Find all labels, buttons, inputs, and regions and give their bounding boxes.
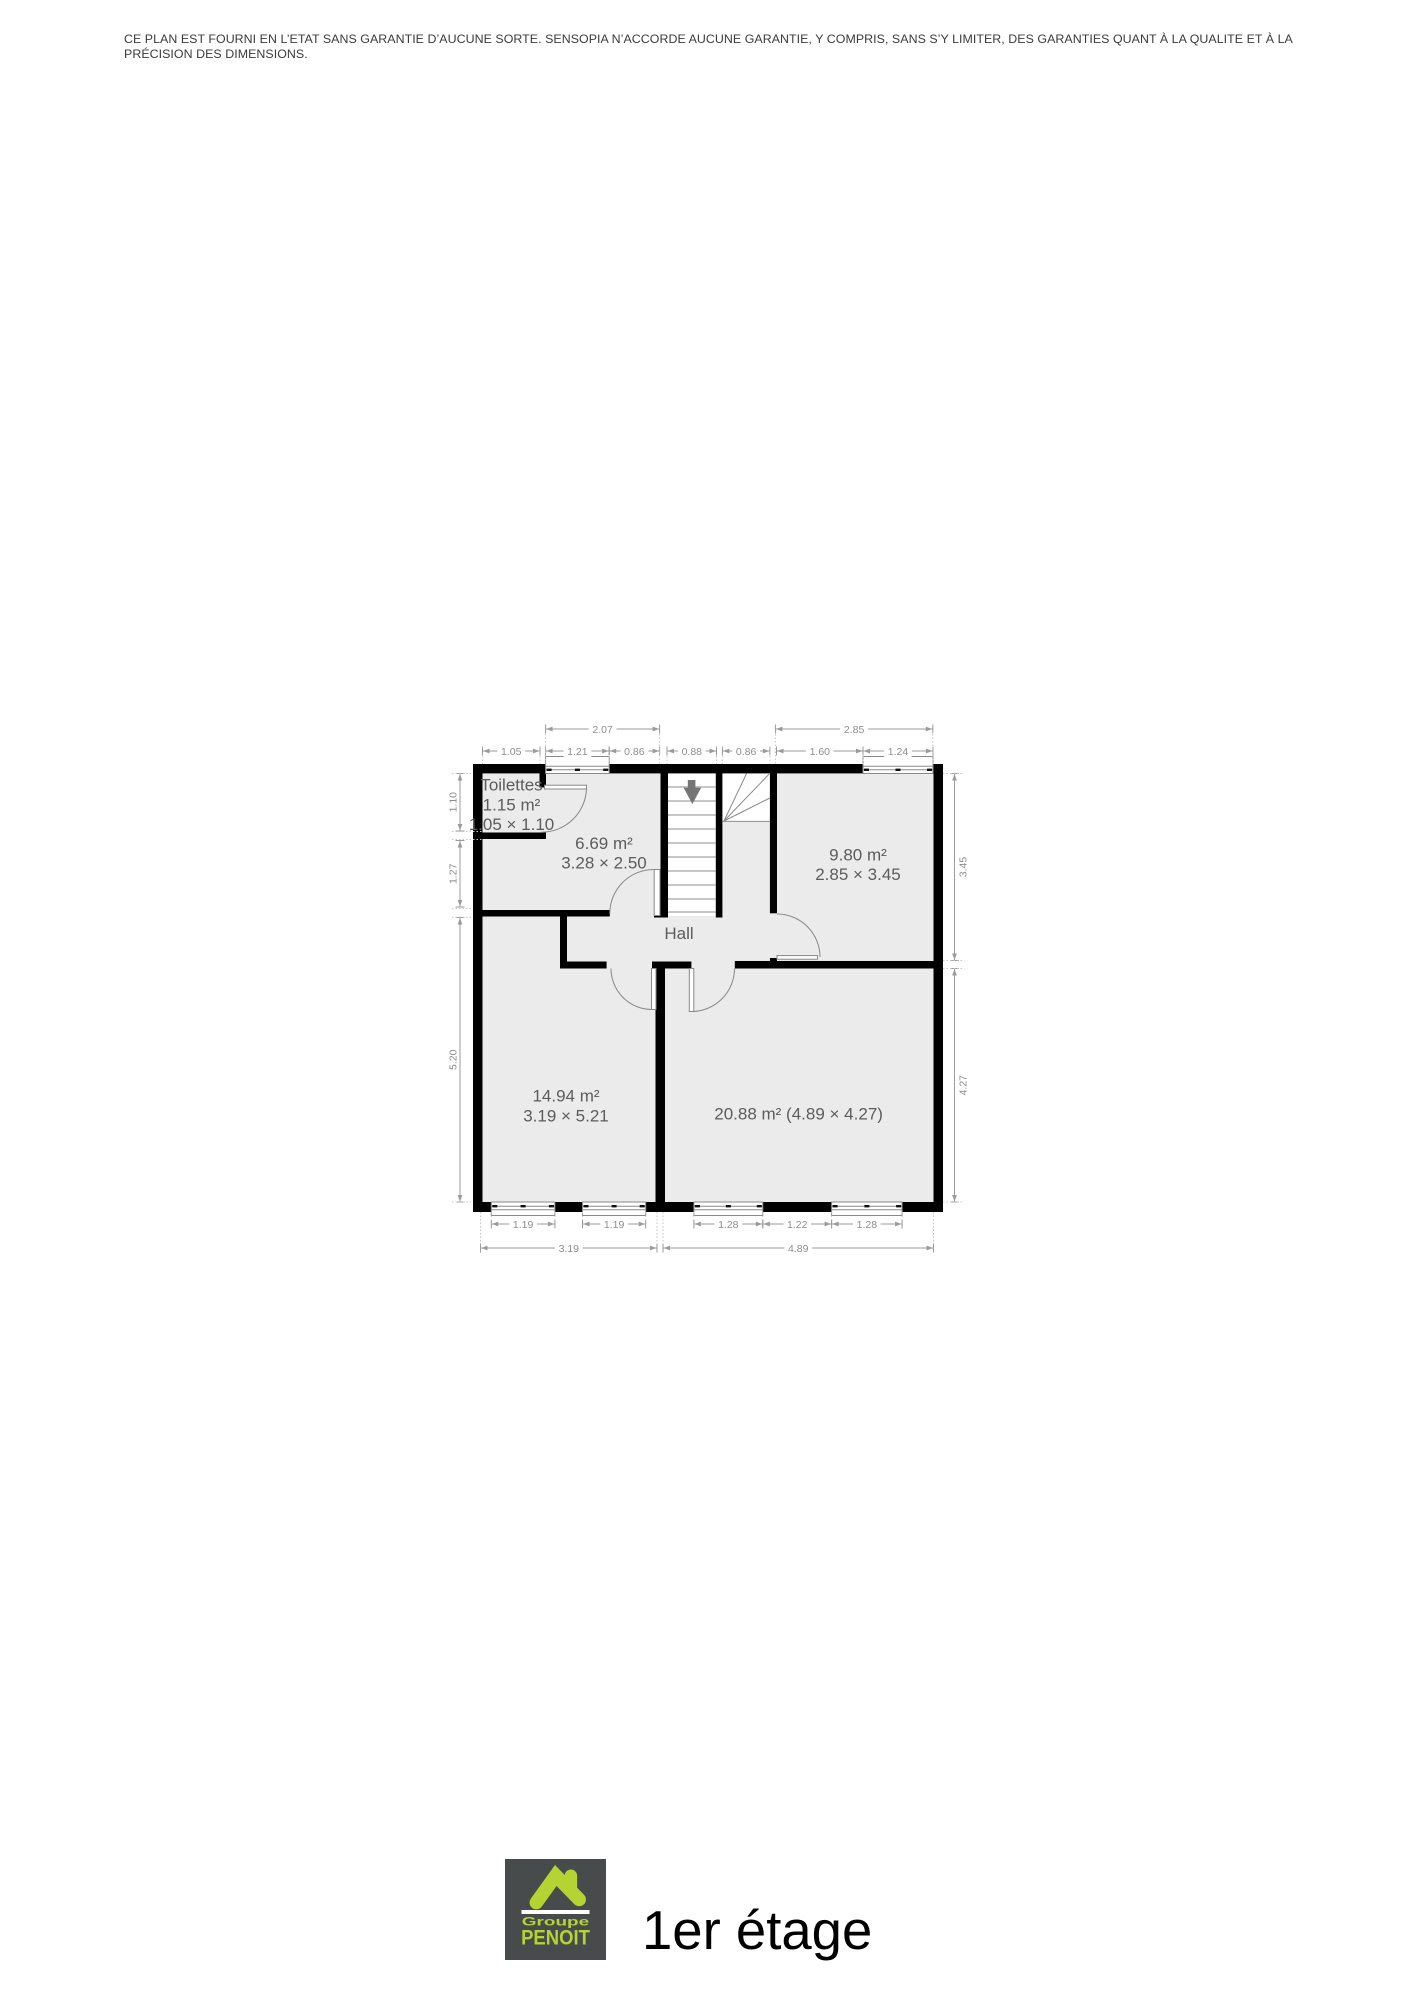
svg-text:3.19: 3.19 [559,1243,580,1255]
svg-text:5.20: 5.20 [447,1049,459,1070]
svg-text:0.86: 0.86 [736,746,757,758]
svg-text:Toilettes: Toilettes [480,776,542,795]
svg-text:14.94 m²: 14.94 m² [532,1087,599,1106]
svg-text:3.19 × 5.21: 3.19 × 5.21 [523,1106,609,1125]
svg-text:1.05 × 1.10: 1.05 × 1.10 [469,815,555,834]
svg-text:2.85: 2.85 [844,724,865,736]
svg-text:PENOIT: PENOIT [521,1926,590,1949]
svg-text:4.89: 4.89 [788,1243,809,1255]
svg-text:1.10: 1.10 [447,792,459,813]
svg-text:Hall: Hall [664,924,693,943]
svg-text:2.85 × 3.45: 2.85 × 3.45 [815,865,901,884]
svg-text:0.88: 0.88 [682,746,703,758]
svg-text:6.69 m²: 6.69 m² [575,834,633,853]
svg-text:9.80 m²: 9.80 m² [829,845,887,864]
svg-text:1.28: 1.28 [857,1219,878,1231]
svg-text:1.19: 1.19 [513,1219,534,1231]
svg-text:1.22: 1.22 [787,1219,808,1231]
svg-text:20.88 m² (4.89 × 4.27): 20.88 m² (4.89 × 4.27) [714,1104,883,1123]
svg-text:1.05: 1.05 [501,746,522,758]
svg-text:1.28: 1.28 [718,1219,739,1231]
svg-text:1.27: 1.27 [447,863,459,884]
svg-text:3.45: 3.45 [957,857,969,878]
svg-text:1.15 m²: 1.15 m² [483,795,541,814]
svg-text:1.24: 1.24 [888,746,909,758]
svg-text:1.21: 1.21 [567,746,588,758]
svg-text:3.28 × 2.50: 3.28 × 2.50 [561,854,647,873]
svg-text:2.07: 2.07 [592,724,613,736]
svg-text:1.19: 1.19 [604,1219,625,1231]
svg-text:4.27: 4.27 [957,1075,969,1096]
svg-text:0.86: 0.86 [624,746,645,758]
svg-text:1.60: 1.60 [810,746,831,758]
